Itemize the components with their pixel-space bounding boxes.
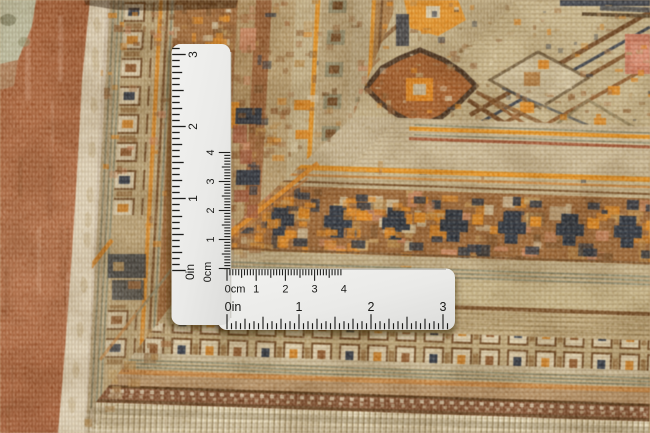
- svg-text:1: 1: [205, 236, 217, 242]
- svg-text:3: 3: [312, 284, 318, 296]
- svg-text:0cm: 0cm: [225, 284, 246, 296]
- svg-text:1: 1: [186, 195, 200, 202]
- svg-text:3: 3: [186, 51, 200, 58]
- svg-text:0in: 0in: [225, 300, 242, 314]
- svg-text:0in: 0in: [183, 264, 197, 280]
- svg-text:0cm: 0cm: [202, 262, 214, 282]
- svg-text:2: 2: [205, 207, 217, 213]
- svg-text:2: 2: [368, 300, 375, 314]
- svg-text:3: 3: [440, 300, 447, 314]
- svg-text:4: 4: [341, 284, 347, 296]
- svg-text:4: 4: [205, 149, 217, 155]
- svg-text:2: 2: [282, 284, 288, 296]
- svg-text:1: 1: [253, 284, 259, 296]
- svg-text:2: 2: [186, 123, 200, 130]
- svg-text:3: 3: [205, 178, 217, 184]
- svg-text:1: 1: [296, 300, 303, 314]
